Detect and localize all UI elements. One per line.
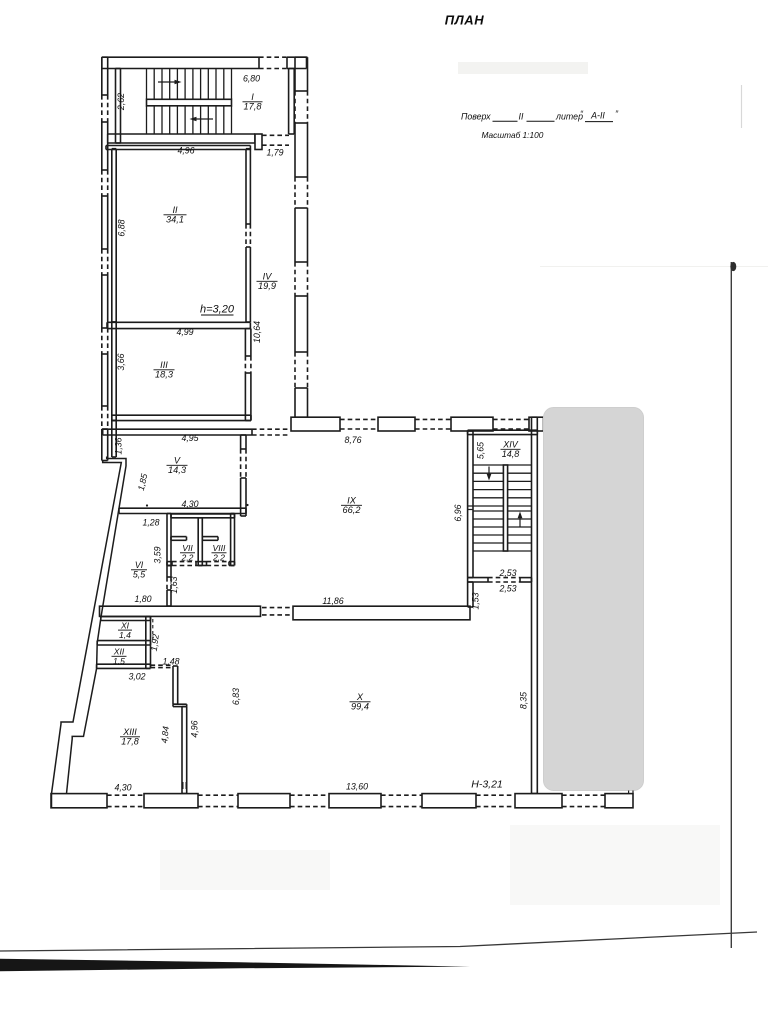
svg-text:17,8: 17,8 xyxy=(244,102,263,112)
svg-text:99,4: 99,4 xyxy=(351,702,369,712)
svg-text:І: І xyxy=(251,92,254,102)
svg-text:Поверх: Поверх xyxy=(461,112,491,122)
svg-text:Масштаб 1:100: Масштаб 1:100 xyxy=(482,130,544,140)
svg-text:2,53: 2,53 xyxy=(498,568,516,578)
svg-text:4,95: 4,95 xyxy=(181,433,198,443)
svg-text:2,53: 2,53 xyxy=(498,584,516,594)
svg-text:14,8: 14,8 xyxy=(502,449,520,459)
svg-text:1,80: 1,80 xyxy=(134,594,151,604)
svg-text:6,80: 6,80 xyxy=(243,74,260,84)
svg-text:VІІ: VІІ xyxy=(182,543,193,553)
svg-text:1,36: 1,36 xyxy=(114,437,124,454)
svg-text:4,99: 4,99 xyxy=(176,327,193,337)
svg-text:8,76: 8,76 xyxy=(344,435,361,445)
svg-text:4,84: 4,84 xyxy=(159,726,171,744)
svg-text:34,1: 34,1 xyxy=(166,215,184,225)
svg-text:4,96: 4,96 xyxy=(189,720,199,737)
svg-text:ІV: ІV xyxy=(263,272,273,282)
svg-text:6,96: 6,96 xyxy=(453,504,463,521)
svg-text:10,64: 10,64 xyxy=(252,321,262,343)
svg-text:1,63: 1,63 xyxy=(169,576,179,593)
svg-text:ХІV: ХІV xyxy=(502,440,519,450)
svg-text:ХІІІ: ХІІІ xyxy=(122,727,137,737)
svg-text:2,2: 2,2 xyxy=(181,553,194,563)
svg-text:1,4: 1,4 xyxy=(119,630,131,640)
svg-text:3,66: 3,66 xyxy=(116,353,126,370)
svg-text:3,02: 3,02 xyxy=(128,672,145,682)
svg-text:1,28: 1,28 xyxy=(142,518,159,528)
svg-text:Н-3,21: Н-3,21 xyxy=(471,779,503,791)
svg-text:ІІ: ІІ xyxy=(172,205,178,215)
svg-text:ІІІ: ІІІ xyxy=(160,360,168,370)
svg-text:19,9: 19,9 xyxy=(258,281,276,291)
svg-text:14,3: 14,3 xyxy=(168,465,187,475)
svg-text:ХІ: ХІ xyxy=(120,620,130,630)
svg-text:1,53: 1,53 xyxy=(471,592,481,609)
svg-text:4,30: 4,30 xyxy=(181,499,198,509)
svg-text:66,2: 66,2 xyxy=(343,505,361,515)
svg-text:13,60: 13,60 xyxy=(346,782,368,792)
svg-text:3,59: 3,59 xyxy=(152,546,162,563)
svg-text:ПЛАН: ПЛАН xyxy=(445,13,484,28)
svg-text:18,3: 18,3 xyxy=(155,370,174,380)
svg-text:1,79: 1,79 xyxy=(266,148,283,158)
svg-text:5,5: 5,5 xyxy=(133,570,145,580)
svg-text:1,5: 1,5 xyxy=(113,656,125,666)
svg-text:ХІІ: ХІІ xyxy=(113,647,125,657)
svg-text:А-ІІ: А-ІІ xyxy=(590,111,605,121)
svg-text:4,96: 4,96 xyxy=(177,146,194,156)
svg-text:Х: Х xyxy=(356,692,364,702)
svg-text:литер: литер xyxy=(555,112,583,122)
svg-text:1,48: 1,48 xyxy=(162,657,179,667)
svg-text:ІХ: ІХ xyxy=(347,496,357,506)
svg-text:8,35: 8,35 xyxy=(519,692,529,709)
svg-text:h=3,20: h=3,20 xyxy=(200,304,235,316)
svg-text:11,86: 11,86 xyxy=(322,596,343,606)
svg-text:17,8: 17,8 xyxy=(121,737,139,747)
svg-text:ІІ: ІІ xyxy=(519,112,524,122)
svg-text:1,92: 1,92 xyxy=(149,633,161,651)
svg-text:2,62: 2,62 xyxy=(116,93,126,111)
svg-text:6,83: 6,83 xyxy=(231,688,241,705)
svg-text:6,88: 6,88 xyxy=(116,219,126,236)
svg-text:VІ: VІ xyxy=(135,560,144,570)
svg-text:4,30: 4,30 xyxy=(114,783,131,793)
svg-text:2,2: 2,2 xyxy=(212,553,225,563)
svg-text:5,65: 5,65 xyxy=(476,442,486,459)
svg-text:VІІІ: VІІІ xyxy=(213,543,227,553)
svg-text:V: V xyxy=(174,456,181,466)
